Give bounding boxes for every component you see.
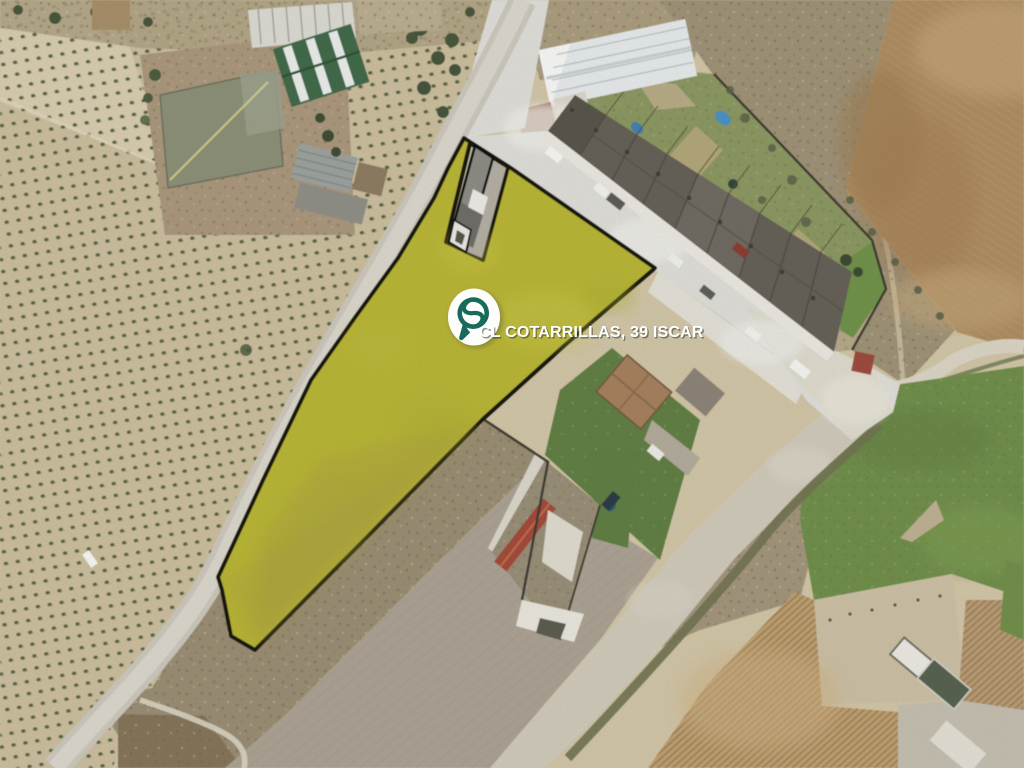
svg-text:CL COTARRILLAS, 39 ISCAR: CL COTARRILLAS, 39 ISCAR [479, 324, 704, 341]
